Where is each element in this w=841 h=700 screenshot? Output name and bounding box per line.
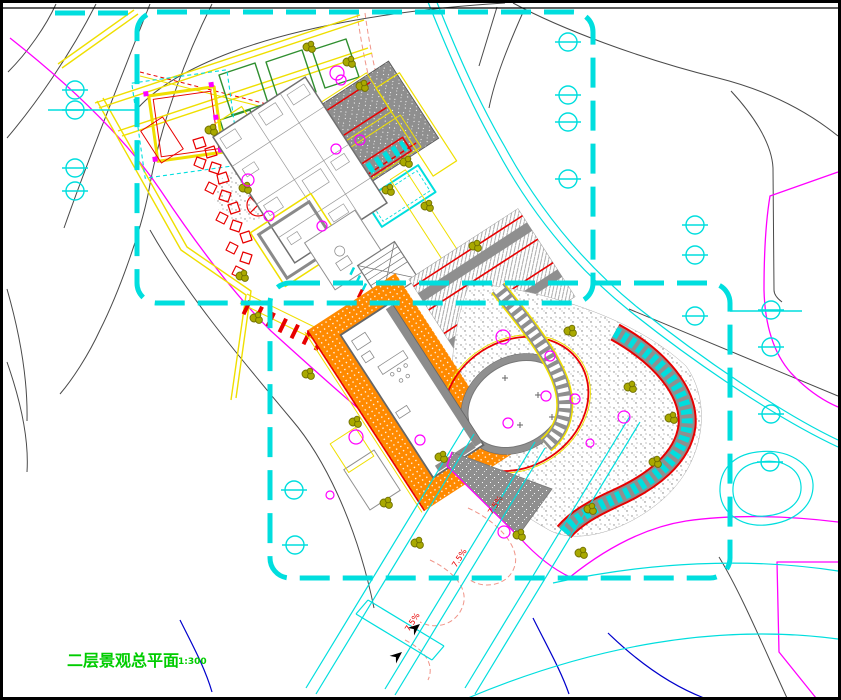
site-plan-drawing: 7.5% 7.5% 7.5% 二层景观总平面 1:300 <box>0 0 841 700</box>
drawing-title: 二层景观总平面 <box>67 651 179 670</box>
cad-viewport: 7.5% 7.5% 7.5% 二层景观总平面 1:300 <box>0 0 841 700</box>
drawing-scale: 1:300 <box>178 657 207 667</box>
